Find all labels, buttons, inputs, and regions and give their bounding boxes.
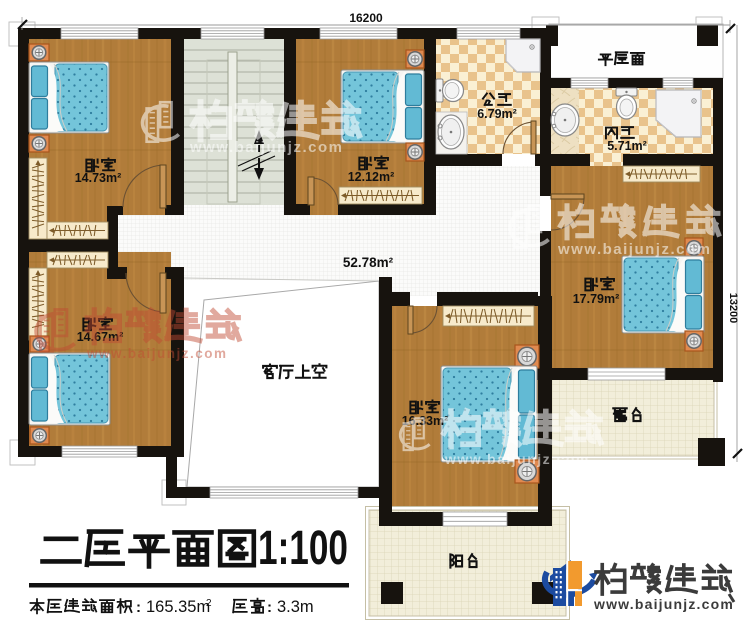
svg-text:5.71m²: 5.71m² [607, 139, 647, 153]
svg-text:14.73m²: 14.73m² [75, 171, 122, 185]
svg-text:www.baijunjz.com: www.baijunjz.com [444, 451, 590, 467]
svg-text:2: 2 [206, 598, 212, 609]
svg-text:www.baijunjz.com: www.baijunjz.com [86, 346, 228, 361]
svg-text:52.78m²: 52.78m² [343, 255, 394, 270]
svg-text:6.79m²: 6.79m² [477, 107, 517, 121]
svg-text:www.baijunjz.com: www.baijunjz.com [189, 139, 343, 156]
svg-text:www.baijunjz.com: www.baijunjz.com [557, 241, 711, 258]
svg-text:16200: 16200 [349, 11, 383, 25]
svg-text:13200: 13200 [727, 293, 739, 324]
svg-text:165.35m: 165.35m [146, 598, 210, 616]
svg-text:www.baijunjz.com: www.baijunjz.com [593, 596, 734, 612]
svg-text::: : [267, 599, 272, 616]
svg-text:12.12m²: 12.12m² [348, 170, 395, 184]
svg-text::: : [136, 599, 141, 616]
svg-text:1:100: 1:100 [258, 522, 348, 575]
svg-text:17.79m²: 17.79m² [573, 292, 620, 306]
svg-text:3.3m: 3.3m [277, 598, 314, 616]
